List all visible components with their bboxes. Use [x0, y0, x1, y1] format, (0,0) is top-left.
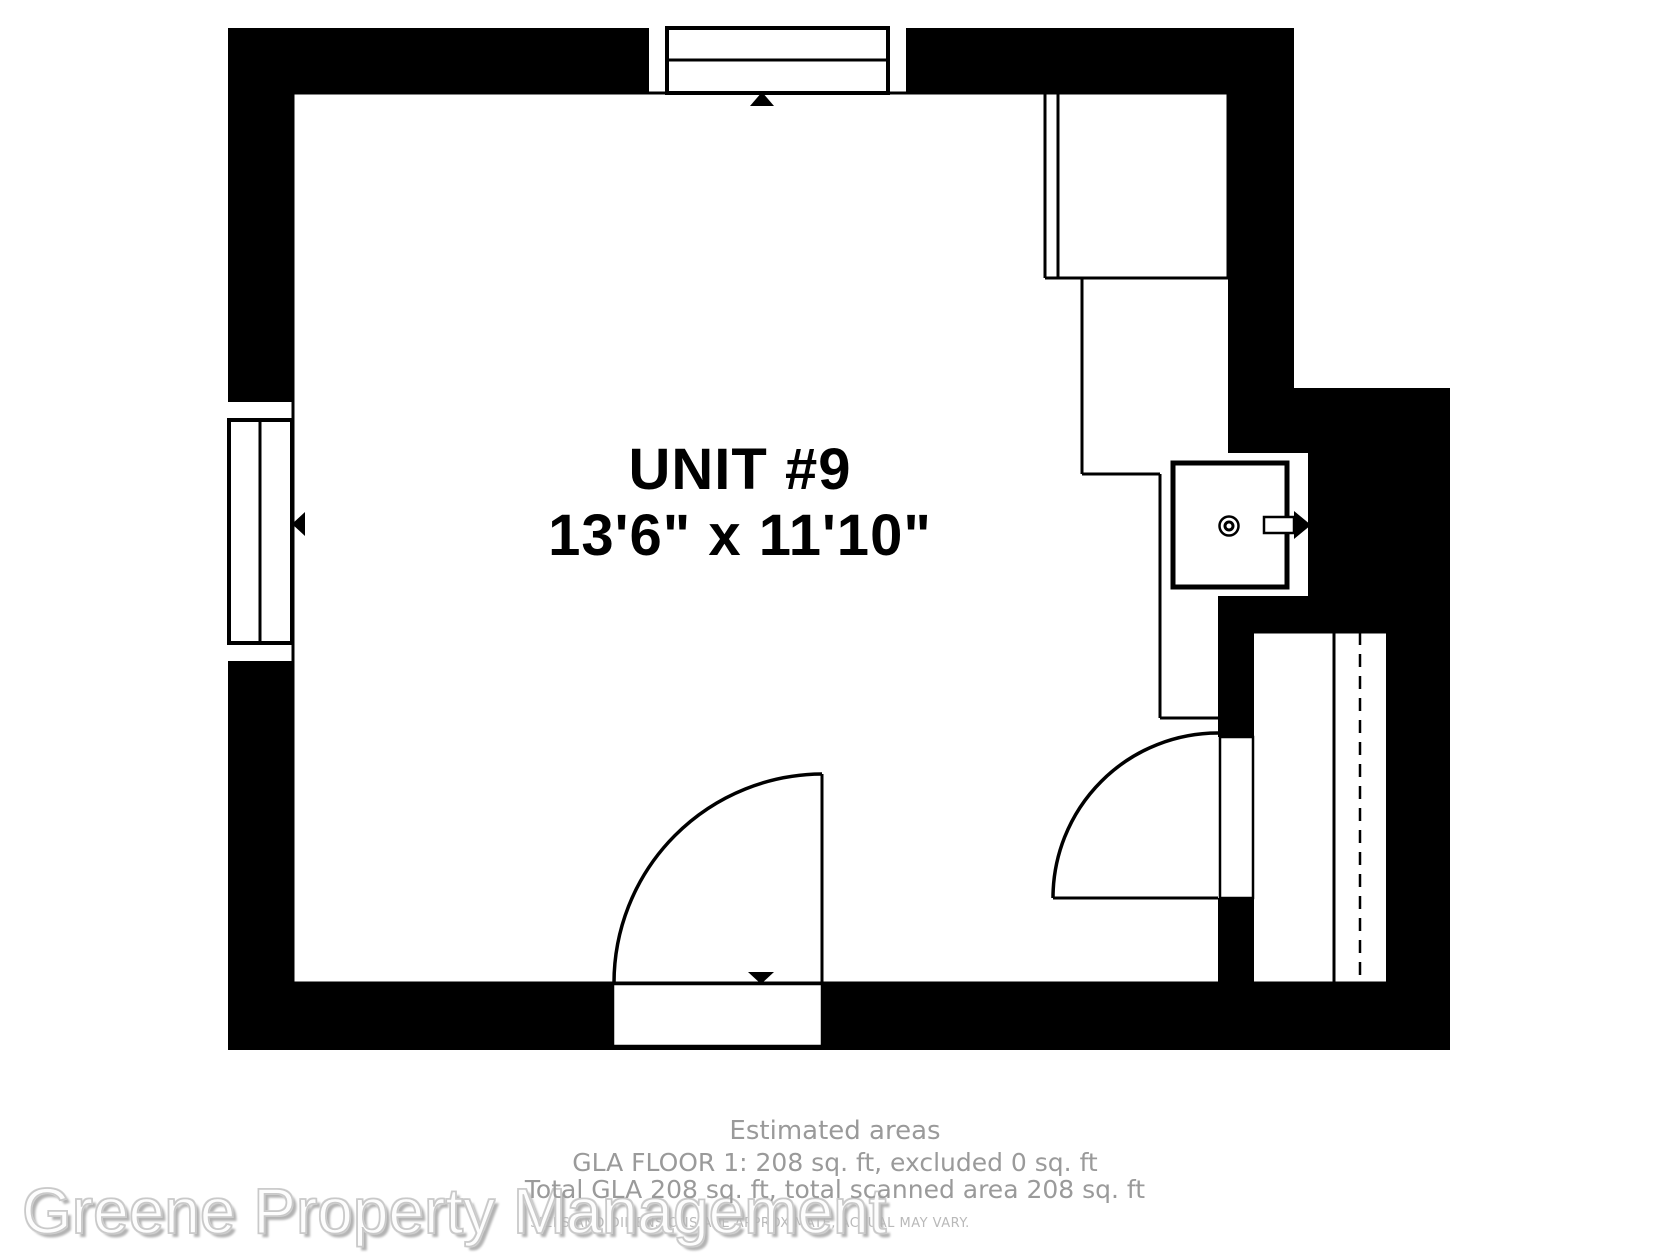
total-gla-line: Total GLA 208 sq. ft, total scanned area…	[235, 1175, 1435, 1204]
interior-door-panel	[1220, 737, 1253, 898]
faucet-body-icon	[1264, 517, 1294, 533]
entry-door-threshold	[613, 984, 822, 1046]
interior-door-swing-arc	[1053, 733, 1218, 898]
wall-left-upper	[228, 93, 293, 402]
gla-floor-line: GLA FLOOR 1: 208 sq. ft, excluded 0 sq. …	[235, 1148, 1435, 1177]
floor-plan	[0, 0, 1680, 1260]
top-window	[667, 28, 888, 93]
sink-fixture	[1173, 463, 1311, 587]
entry-door-swing-arc	[614, 774, 822, 983]
room-label: UNIT #9	[440, 436, 1040, 503]
estimated-areas-title: Estimated areas	[235, 1116, 1435, 1146]
wall-left-lower	[228, 661, 293, 984]
wall-door-jamb-upper	[1218, 632, 1254, 737]
room-dimensions: 13'6" x 11'10"	[440, 502, 1040, 569]
wall-closet-right	[1386, 632, 1450, 984]
wall-top-left	[228, 28, 649, 93]
wall-right-upper	[1228, 93, 1294, 453]
wall-right-mid	[1308, 453, 1450, 596]
interior-door	[1053, 733, 1253, 898]
left-window	[229, 420, 292, 643]
wall-right-step	[1294, 388, 1450, 453]
wall-top-right	[906, 28, 1294, 93]
wall-band-above-closet	[1218, 596, 1450, 632]
entry-door	[613, 774, 822, 1046]
wall-bottom	[228, 984, 1450, 1050]
wall-door-jamb-lower	[1218, 898, 1254, 984]
